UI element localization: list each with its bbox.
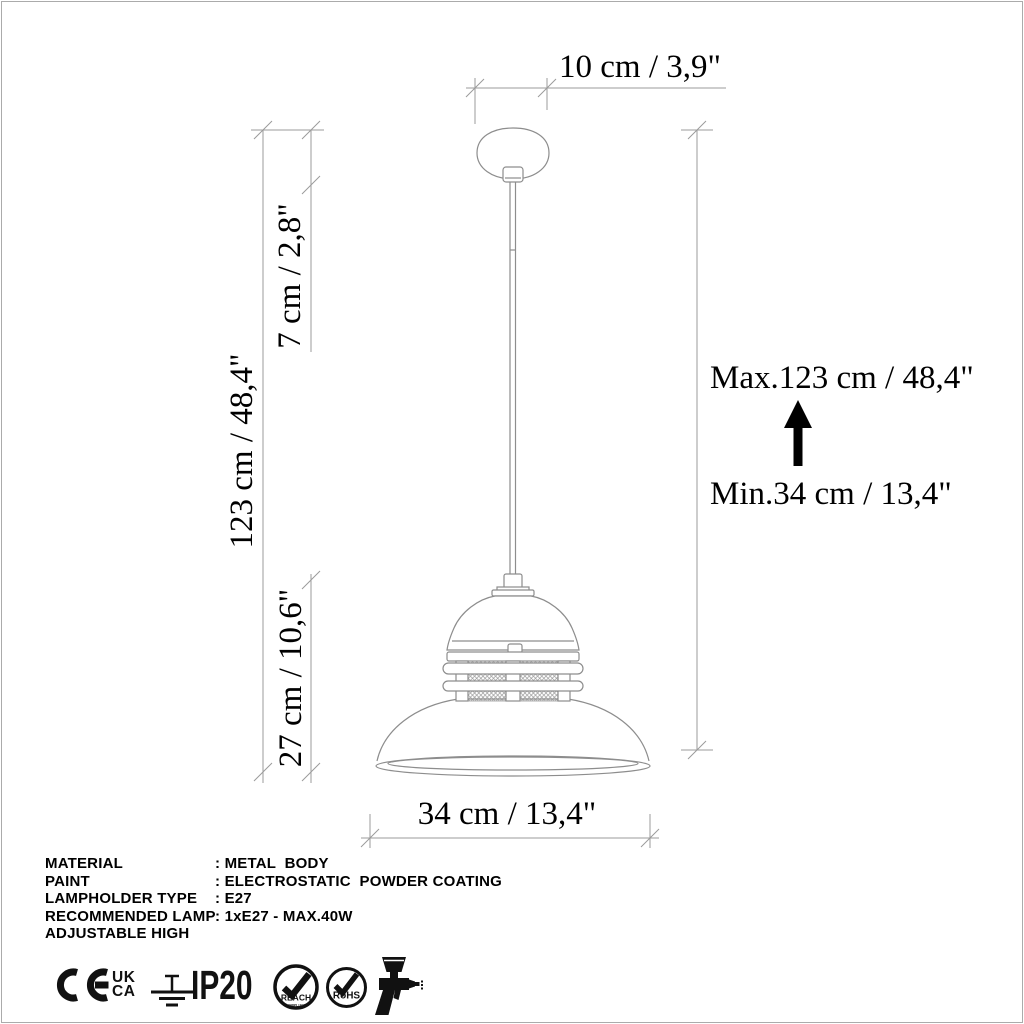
dim-min-height: Min.34 cm / 13,4"	[710, 474, 952, 514]
spec-row-adjustable: ADJUSTABLE HIGH	[45, 925, 502, 943]
dim-max-height: Max.123 cm / 48,4"	[710, 358, 974, 398]
ring-band-upper	[443, 663, 583, 674]
spec-label: PAINT	[45, 873, 215, 891]
spec-value: : 1xE27 - MAX.40W	[215, 908, 353, 926]
ring-band-lower	[443, 681, 583, 691]
spec-row-material: MATERIAL : METAL BODY	[45, 855, 502, 873]
spec-label: RECOMMENDED LAMP	[45, 908, 215, 926]
socket-cover-bell	[447, 596, 579, 650]
lamp-spec-sheet: 10 cm / 3,9" 123 cm / 48,4" 7 cm / 2,8" …	[0, 0, 1024, 1024]
dim-total-height: 123 cm / 48,4"	[222, 331, 262, 571]
spec-label: LAMPHOLDER TYPE	[45, 890, 215, 908]
shade-dome	[377, 699, 649, 761]
dim-shade-height: 27 cm / 10,6"	[271, 573, 311, 783]
spec-row-lampholder: LAMPHOLDER TYPE : E27	[45, 890, 502, 908]
spec-value: : ELECTROSTATIC POWDER COATING	[215, 873, 502, 891]
spec-label: MATERIAL	[45, 855, 215, 873]
spec-value: : E27	[215, 890, 252, 908]
spec-table: MATERIAL : METAL BODY PAINT : ELECTROSTA…	[45, 855, 502, 943]
dim-canopy-height: 7 cm / 2,8"	[270, 191, 310, 361]
spec-row-paint: PAINT : ELECTROSTATIC POWDER COATING	[45, 873, 502, 891]
canopy-connector	[503, 167, 523, 182]
spec-row-recommended-lamp: RECOMMENDED LAMP : 1xE27 - MAX.40W	[45, 908, 502, 926]
shade-collar	[447, 652, 579, 661]
pendant-lamp-illustration	[376, 128, 650, 776]
suspension-cord	[510, 182, 516, 576]
spec-value: : METAL BODY	[215, 855, 329, 873]
spec-label: ADJUSTABLE HIGH	[45, 925, 215, 943]
dim-top-width: 10 cm / 3,9"	[540, 47, 740, 87]
dim-shade-diameter: 34 cm / 13,4"	[387, 794, 627, 834]
up-arrow-icon	[784, 400, 812, 466]
